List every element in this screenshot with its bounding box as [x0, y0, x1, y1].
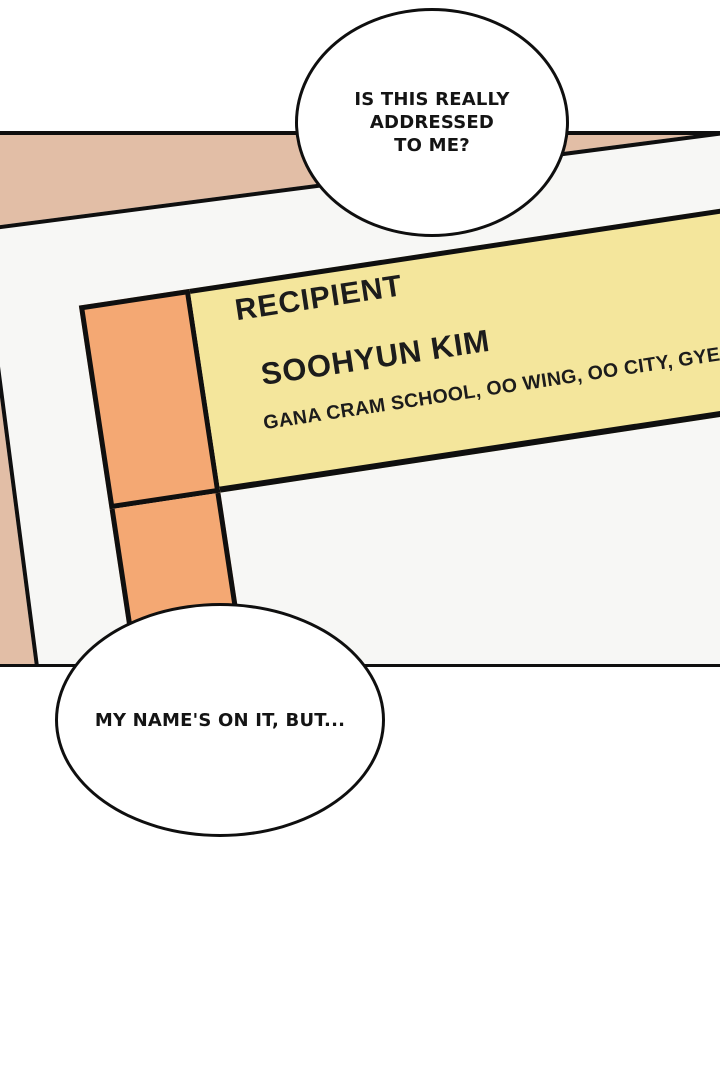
- speech-line-2: ADDRESSED: [354, 111, 509, 134]
- speech-bubble-bottom: MY NAME'S ON IT, BUT...: [55, 603, 385, 837]
- speech-bubble-top: IS THIS REALLY ADDRESSED TO ME?: [295, 8, 569, 237]
- recipient-heading: RECIPIENT: [233, 269, 405, 328]
- speech-line-3: TO ME?: [354, 134, 509, 157]
- shipping-label: RECIPIENT SOOHYUN KIM GANA CRAM SCHOOL, …: [79, 166, 720, 667]
- comic-page: RECIPIENT SOOHYUN KIM GANA CRAM SCHOOL, …: [0, 0, 720, 1080]
- speech-bubble-top-text: IS THIS REALLY ADDRESSED TO ME?: [354, 88, 509, 157]
- speech-line-1: IS THIS REALLY: [354, 88, 509, 111]
- speech-bubble-bottom-text: MY NAME'S ON IT, BUT...: [95, 709, 345, 732]
